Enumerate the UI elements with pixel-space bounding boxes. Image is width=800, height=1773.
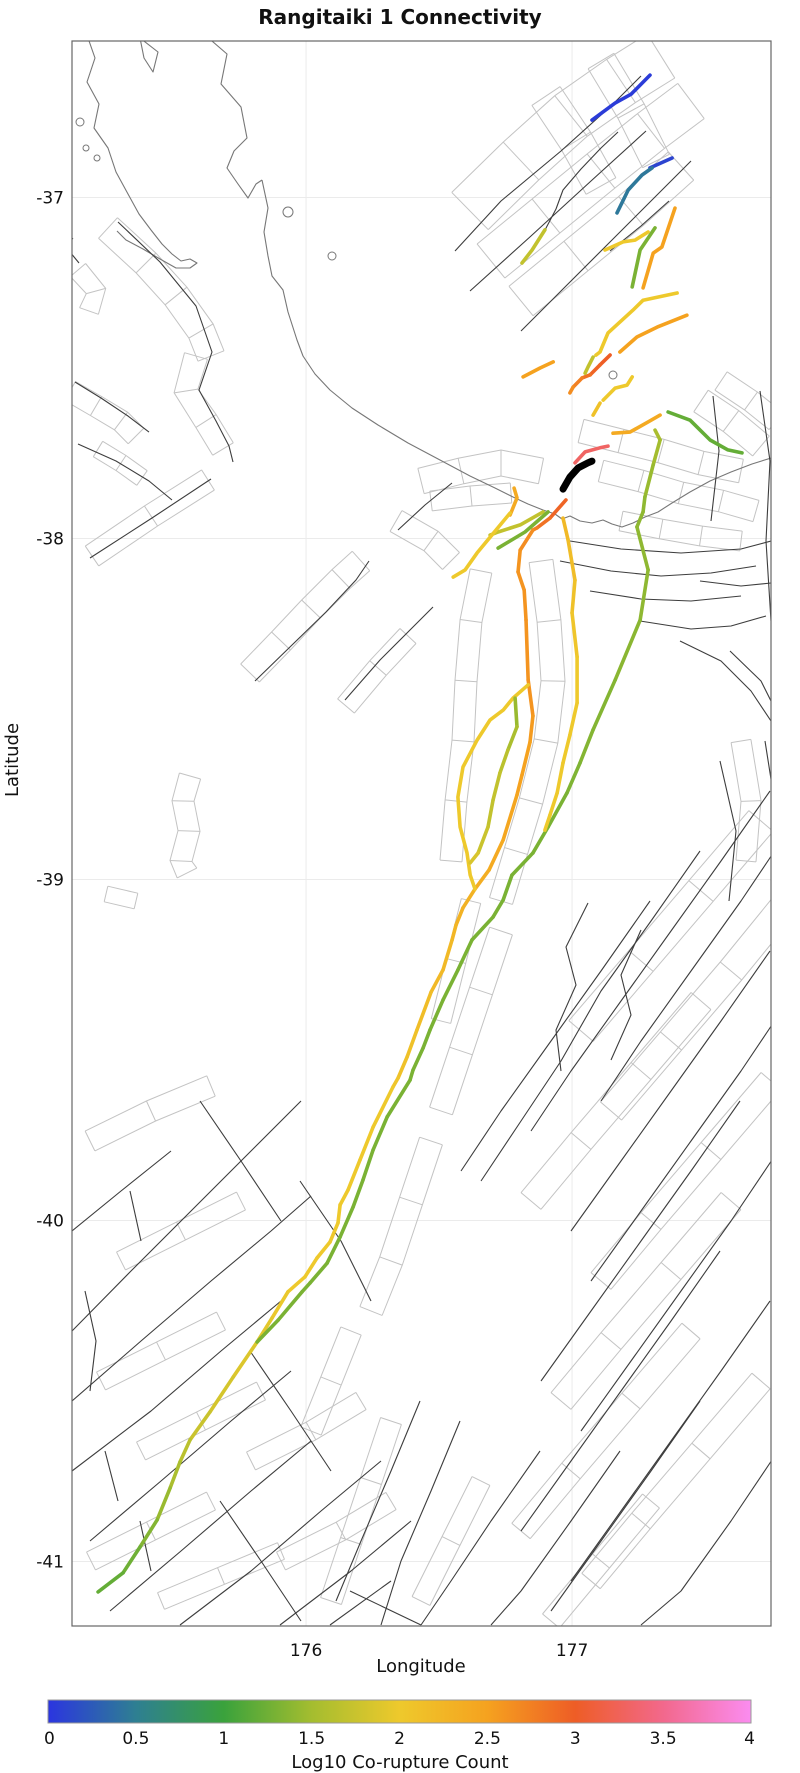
fault-polygon-chain <box>104 886 138 909</box>
colorbar-tick-label: 3 <box>570 1729 581 1749</box>
background-fault-trace <box>336 1401 420 1601</box>
fault-polygon-chain <box>85 470 214 566</box>
fault-polygon-chain <box>99 218 225 362</box>
fault-polygon-chain <box>569 811 773 1042</box>
background-fault-trace <box>60 228 73 239</box>
fault-polygon-chain <box>174 353 233 456</box>
colorbar-label: Log10 Co-rupture Count <box>291 1752 508 1773</box>
colorbar-tick-labels: 00.511.522.533.54 <box>44 1729 755 1749</box>
fault-polygon-chain <box>338 628 416 713</box>
fault-polygon-chain <box>301 1327 361 1435</box>
colorbar-tick-label: 3.5 <box>650 1729 677 1749</box>
background-fault-trace <box>90 479 211 558</box>
background-fault-trace <box>90 1371 291 1541</box>
background-fault-trace <box>250 1351 331 1471</box>
colorbar-tick-label: 1 <box>218 1729 229 1749</box>
fault-polygon-chain <box>390 511 460 570</box>
island-outline <box>609 371 617 379</box>
island-outline <box>83 145 89 151</box>
fault-polygon-chain <box>85 1076 215 1151</box>
colorbar-tick-label: 1.5 <box>298 1729 325 1749</box>
fault-polygon-chain <box>170 773 201 878</box>
background-fault-trace <box>350 1591 421 1625</box>
background-fault-trace <box>541 1101 740 1381</box>
background-fault-trace <box>641 1451 778 1625</box>
fault-trace-teal <box>617 168 652 213</box>
y-tick-label: -39 <box>36 871 64 891</box>
background-fault-trace <box>345 607 433 700</box>
background-fault-trace <box>521 161 691 331</box>
background-fault-trace <box>590 591 741 601</box>
background-fault-trace <box>72 1196 311 1401</box>
x-tick-label: 177 <box>556 1641 588 1661</box>
background-fault-trace <box>700 581 771 586</box>
y-tick-labels: -37-38-39-40-41 <box>36 189 64 1573</box>
fault-trace-green-parallel <box>257 430 660 1342</box>
background-fault-trace <box>72 1101 301 1331</box>
background-fault-trace <box>730 651 776 711</box>
fault-polygon-chain <box>418 450 544 494</box>
background-fault-trace <box>255 561 369 681</box>
co-rupture-fault-traces <box>98 75 742 1592</box>
background-fault-trace <box>118 222 233 462</box>
fault-polygon-chain <box>65 381 144 443</box>
background-fault-trace <box>110 1441 311 1611</box>
page-title: Rangitaiki 1 Connectivity <box>258 5 541 29</box>
background-fault-trace <box>521 1251 720 1531</box>
island-outline <box>94 155 100 161</box>
fault-trace-yellow-small <box>593 403 600 415</box>
background-fault-trace <box>105 1451 118 1501</box>
fault-trace-olive-west <box>522 230 545 263</box>
background-fault-trace <box>421 1451 540 1625</box>
fault-polygon-chain <box>70 263 105 314</box>
background-fault-trace <box>280 1521 411 1625</box>
fault-polygon-chain <box>137 1382 266 1460</box>
coastline <box>205 35 262 198</box>
fault-polygon-chain <box>440 569 492 862</box>
fault-polygon-chain <box>117 1192 246 1270</box>
y-tick-label: -38 <box>36 530 64 550</box>
y-tick-label: -41 <box>36 1553 64 1573</box>
background-fault-trace <box>330 1581 391 1625</box>
fault-trace-blue-short <box>650 158 672 168</box>
fault-polygon-chain <box>158 1543 285 1610</box>
background-fault-trace <box>398 483 452 530</box>
colorbar-tick-label: 2.5 <box>474 1729 501 1749</box>
fault-polygon-chain <box>543 1494 660 1628</box>
fault-trace-main-spine <box>98 500 566 1592</box>
colorbar-gradient <box>48 1700 751 1723</box>
background-fault-trace <box>85 1291 96 1391</box>
fault-polygon-chain <box>551 1193 741 1410</box>
background-fault-trace <box>57 243 79 263</box>
x-tick-label: 176 <box>290 1641 322 1661</box>
y-tick-label: -37 <box>36 189 64 209</box>
background-fault-trace <box>571 1301 770 1581</box>
coastline <box>140 38 158 72</box>
y-axis-label: Latitude <box>2 723 23 797</box>
background-fault-trace <box>560 561 756 576</box>
background-fault-trace <box>640 616 766 629</box>
basemap-fault-network <box>57 34 799 1628</box>
fault-polygon-chain <box>452 34 675 230</box>
colorbar-tick-label: 4 <box>744 1729 755 1749</box>
fault-polygon-chain <box>731 739 761 861</box>
fault-polygon-chain <box>241 551 370 682</box>
island-outline <box>283 207 293 217</box>
background-fault-trace <box>591 1001 788 1281</box>
background-fault-trace <box>760 391 771 621</box>
fault-polygon-chain <box>431 899 480 1024</box>
fault-polygon-chain <box>715 372 783 430</box>
coastline <box>262 180 771 527</box>
fault-trace-orange-wavy <box>523 362 553 377</box>
background-fault-trace <box>680 641 771 721</box>
fault-trace-yellow-diagonal <box>603 377 632 400</box>
fault-polygon-chain <box>360 1137 443 1315</box>
highlight-fault-rangitaiki <box>563 461 592 489</box>
colorbar-tick-label: 2 <box>394 1729 405 1749</box>
map-canvas: Rangitaiki 1 Connectivity 176177 -37-38-… <box>0 0 800 1773</box>
island-outline <box>76 118 84 126</box>
fault-trace-middle-olive <box>470 698 517 863</box>
fault-trace-orange-row <box>620 315 687 352</box>
fault-polygon-chain <box>694 390 770 456</box>
island-outline <box>328 252 336 260</box>
fault-trace-green-east <box>668 412 742 453</box>
background-fault-trace <box>180 1461 381 1625</box>
colorbar-tick-label: 0.5 <box>122 1729 149 1749</box>
background-fault-trace <box>75 382 149 432</box>
fault-trace-orange-lower-row <box>613 415 660 433</box>
background-fault-trace <box>571 951 770 1231</box>
background-fault-trace <box>72 1151 171 1231</box>
fault-polygon-chain <box>591 1073 781 1290</box>
fault-polygon-chain <box>430 483 512 511</box>
fault-polygon-chain <box>321 1418 402 1605</box>
background-fault-trace <box>200 1101 281 1221</box>
x-axis-label: Longitude <box>376 1656 466 1677</box>
fault-polygon-chain <box>600 892 799 1120</box>
background-fault-trace <box>581 1151 778 1431</box>
fault-polygon-chain <box>512 1323 700 1539</box>
background-fault-trace <box>130 1191 141 1241</box>
fault-polygon-chain <box>521 993 711 1210</box>
background-fault-trace <box>220 1501 301 1621</box>
background-fault-trace <box>78 444 172 500</box>
background-fault-trace <box>711 396 719 521</box>
figure-rangitaiki-connectivity: Rangitaiki 1 Connectivity 176177 -37-38-… <box>0 0 800 1773</box>
background-fault-trace <box>551 1401 700 1611</box>
fault-polygon-chain <box>277 1492 397 1570</box>
y-tick-label: -40 <box>36 1212 64 1232</box>
colorbar-tick-label: 0 <box>44 1729 55 1749</box>
